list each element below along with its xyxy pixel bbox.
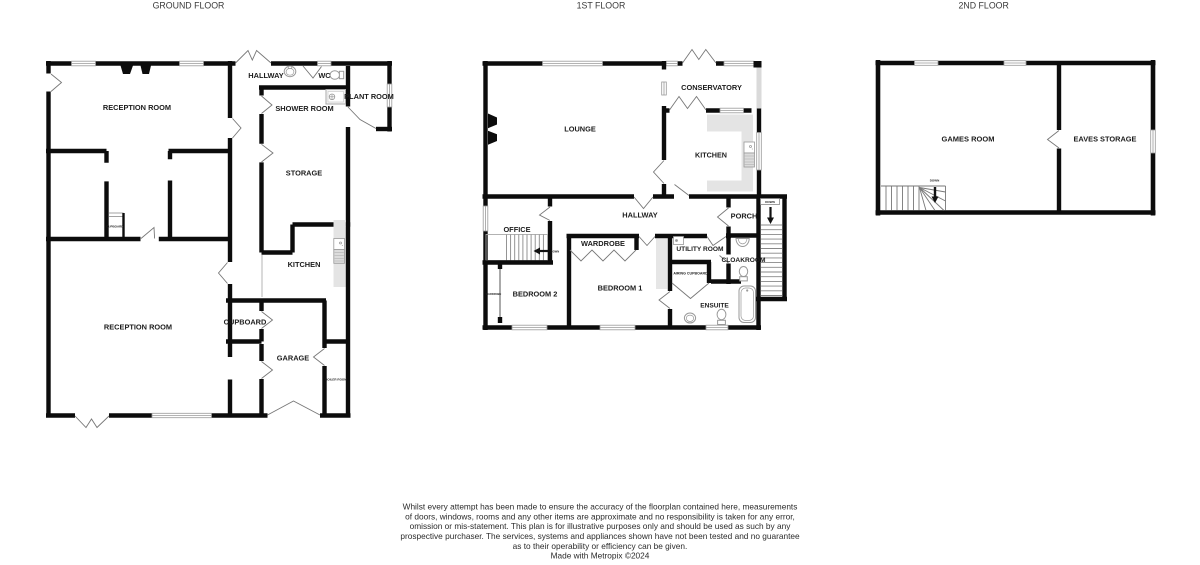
svg-text:UTILITY ROOM: UTILITY ROOM [676, 246, 724, 253]
svg-text:Made with Metropix ©2024: Made with Metropix ©2024 [551, 550, 650, 560]
svg-text:WARDROBE: WARDROBE [581, 239, 625, 248]
svg-text:GARAGE: GARAGE [277, 354, 310, 363]
svg-text:prospective purchaser. The ser: prospective purchaser. The services, sys… [400, 531, 800, 541]
svg-text:WC: WC [318, 71, 331, 80]
svg-text:CONSERVATORY: CONSERVATORY [681, 83, 742, 92]
svg-text:DOWN: DOWN [765, 200, 775, 204]
svg-text:CUPBOARD: CUPBOARD [224, 318, 267, 327]
svg-text:of doors, windows, rooms and a: of doors, windows, rooms and any other i… [405, 511, 795, 521]
svg-text:CUPBOARD: CUPBOARD [106, 224, 124, 228]
svg-text:DOWN: DOWN [551, 250, 559, 254]
svg-text:PORCH: PORCH [731, 212, 758, 221]
svg-text:omission or mis-statement. Thi: omission or mis-statement. This plan is … [410, 521, 792, 531]
svg-text:EAVES STORAGE: EAVES STORAGE [1074, 135, 1137, 144]
svg-text:KITCHEN: KITCHEN [288, 260, 321, 269]
svg-text:RECEPTION ROOM: RECEPTION ROOM [103, 103, 171, 112]
svg-text:CLOAKROOM: CLOAKROOM [722, 257, 766, 264]
svg-text:AIRING CUPBOARD: AIRING CUPBOARD [673, 272, 708, 276]
svg-text:ENSUITE: ENSUITE [700, 303, 729, 310]
svg-text:OFFICE: OFFICE [503, 225, 530, 234]
svg-text:SHOWER ROOM: SHOWER ROOM [275, 104, 333, 113]
svg-text:1ST FLOOR: 1ST FLOOR [577, 1, 626, 11]
svg-text:Whilst every attempt has been: Whilst every attempt has been made to en… [403, 502, 798, 512]
svg-text:WARDROBE: WARDROBE [486, 292, 502, 296]
svg-text:as to their operability or eff: as to their operability or efficiency ca… [513, 541, 688, 551]
svg-text:HALLWAY: HALLWAY [248, 71, 284, 80]
svg-text:GAMES ROOM: GAMES ROOM [942, 135, 995, 144]
svg-text:PLANT ROOM: PLANT ROOM [344, 92, 394, 101]
svg-text:2ND FLOOR: 2ND FLOOR [959, 1, 1009, 11]
svg-text:LOUNGE: LOUNGE [564, 125, 596, 134]
svg-text:KITCHEN: KITCHEN [695, 151, 727, 160]
svg-text:BEDROOM 2: BEDROOM 2 [513, 290, 558, 299]
svg-text:DOWN: DOWN [930, 179, 940, 183]
svg-text:HALLWAY: HALLWAY [622, 211, 658, 220]
svg-text:STORAGE: STORAGE [286, 169, 322, 178]
svg-text:BEDROOM 1: BEDROOM 1 [598, 284, 643, 293]
svg-text:BOILER ROOM: BOILER ROOM [325, 377, 347, 381]
svg-text:GROUND FLOOR: GROUND FLOOR [153, 1, 225, 11]
svg-text:RECEPTION ROOM: RECEPTION ROOM [104, 323, 172, 332]
